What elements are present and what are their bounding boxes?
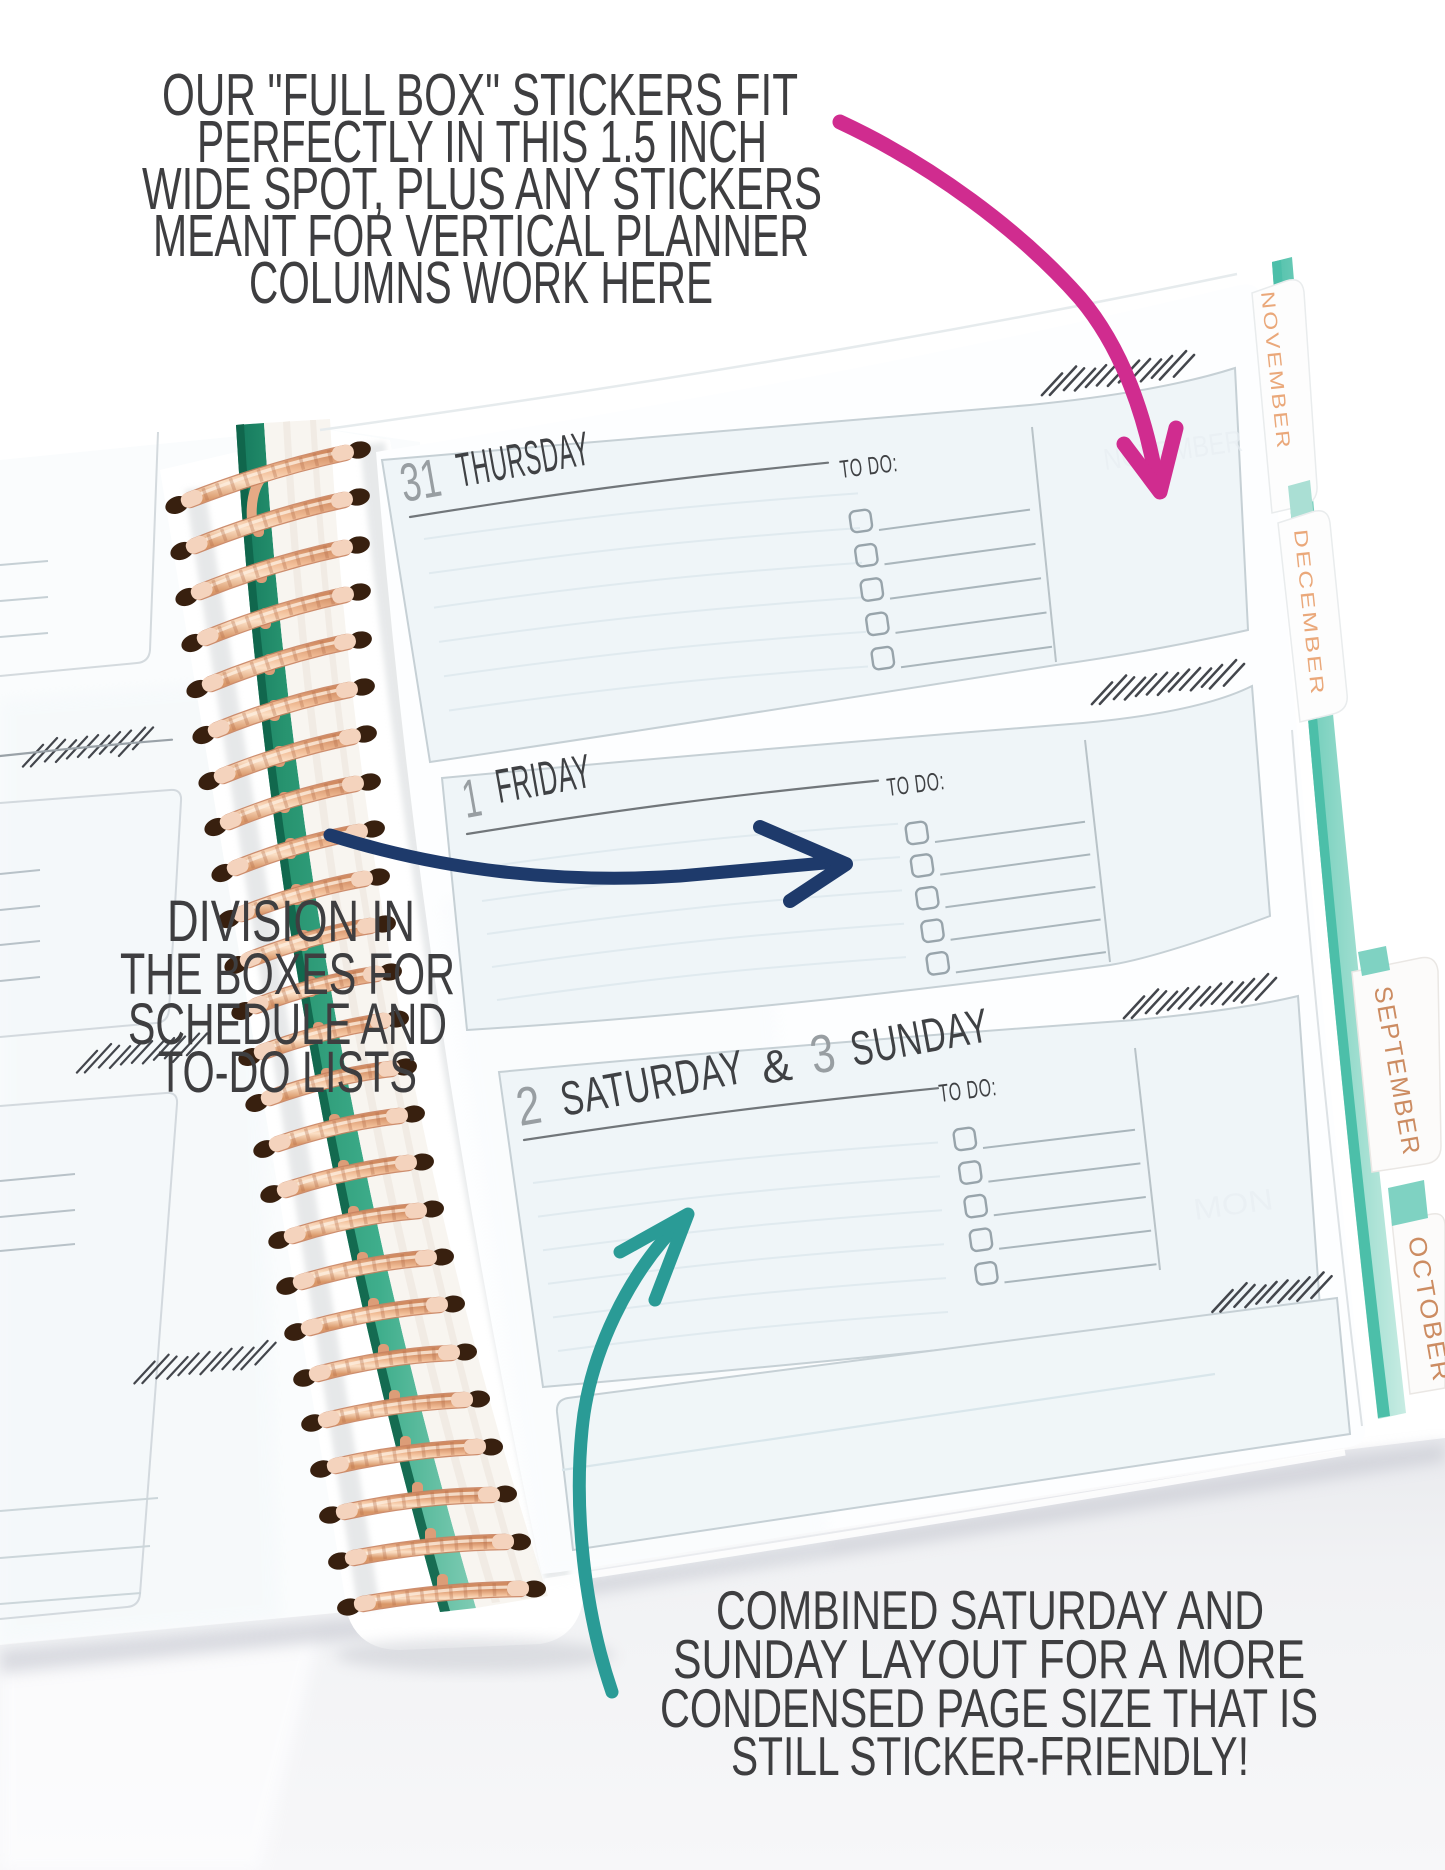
svg-text:COLUMNS WORK HERE: COLUMNS WORK HERE [249,250,713,316]
svg-text:TO-DO LISTS: TO-DO LISTS [158,1039,417,1105]
svg-text:STILL STICKER-FRIENDLY!: STILL STICKER-FRIENDLY! [731,1727,1249,1788]
